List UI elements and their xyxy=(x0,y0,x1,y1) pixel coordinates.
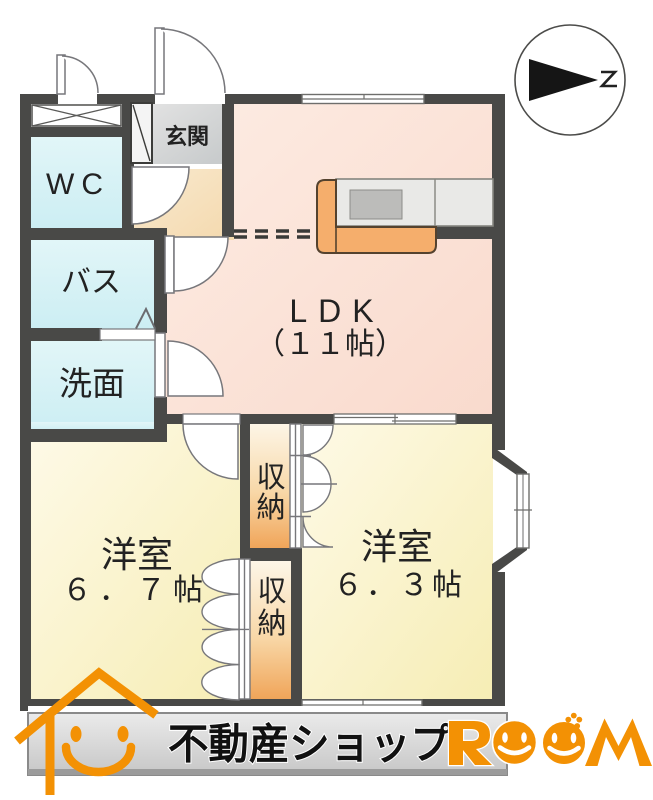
svg-text:６．７帖: ６．７帖 xyxy=(62,574,210,607)
svg-text:洗面: 洗面 xyxy=(59,365,125,402)
svg-text:納: 納 xyxy=(256,491,285,524)
svg-text:不動産ショップ: 不動産ショップ xyxy=(168,721,451,768)
svg-text:納: 納 xyxy=(257,607,286,640)
svg-text:６．３帖: ６．３帖 xyxy=(333,569,465,602)
svg-text:LDK: LDK xyxy=(289,293,384,329)
svg-text:収: 収 xyxy=(257,576,286,608)
svg-text:収: 収 xyxy=(256,462,285,494)
svg-text:洋室: 洋室 xyxy=(361,526,433,567)
svg-text:バス: バス xyxy=(61,266,121,299)
svg-text:（１１帖）: （１１帖） xyxy=(255,328,405,361)
svg-text:玄関: 玄関 xyxy=(165,124,209,149)
svg-text:WC: WC xyxy=(46,168,110,201)
svg-text:洋室: 洋室 xyxy=(101,534,173,575)
